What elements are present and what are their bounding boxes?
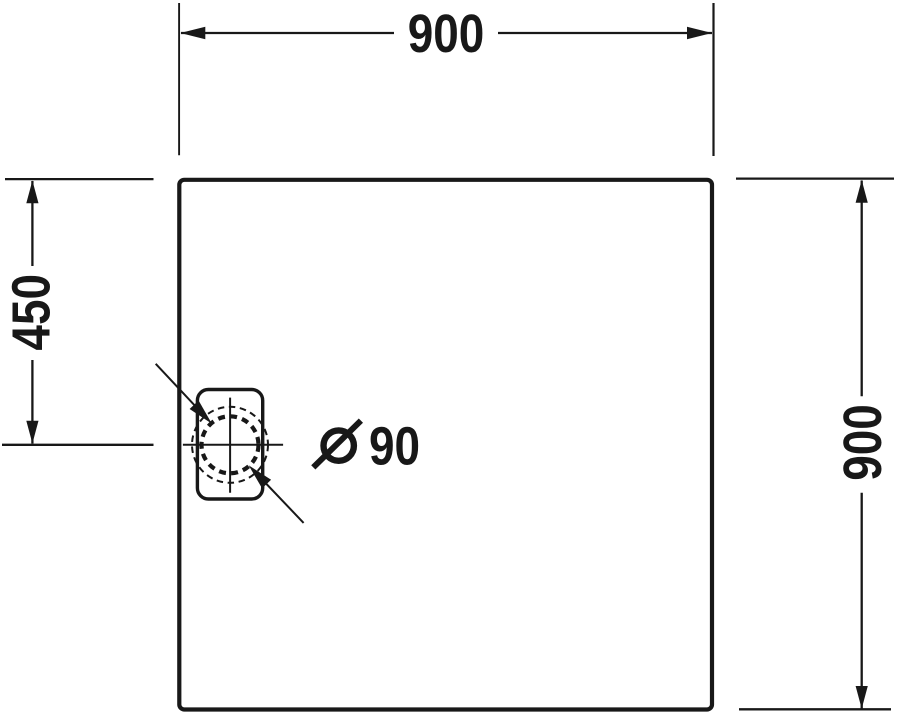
svg-text:900: 900 bbox=[408, 4, 485, 64]
svg-text:90: 90 bbox=[369, 416, 420, 476]
svg-text:450: 450 bbox=[1, 274, 61, 351]
svg-text:900: 900 bbox=[833, 404, 893, 481]
